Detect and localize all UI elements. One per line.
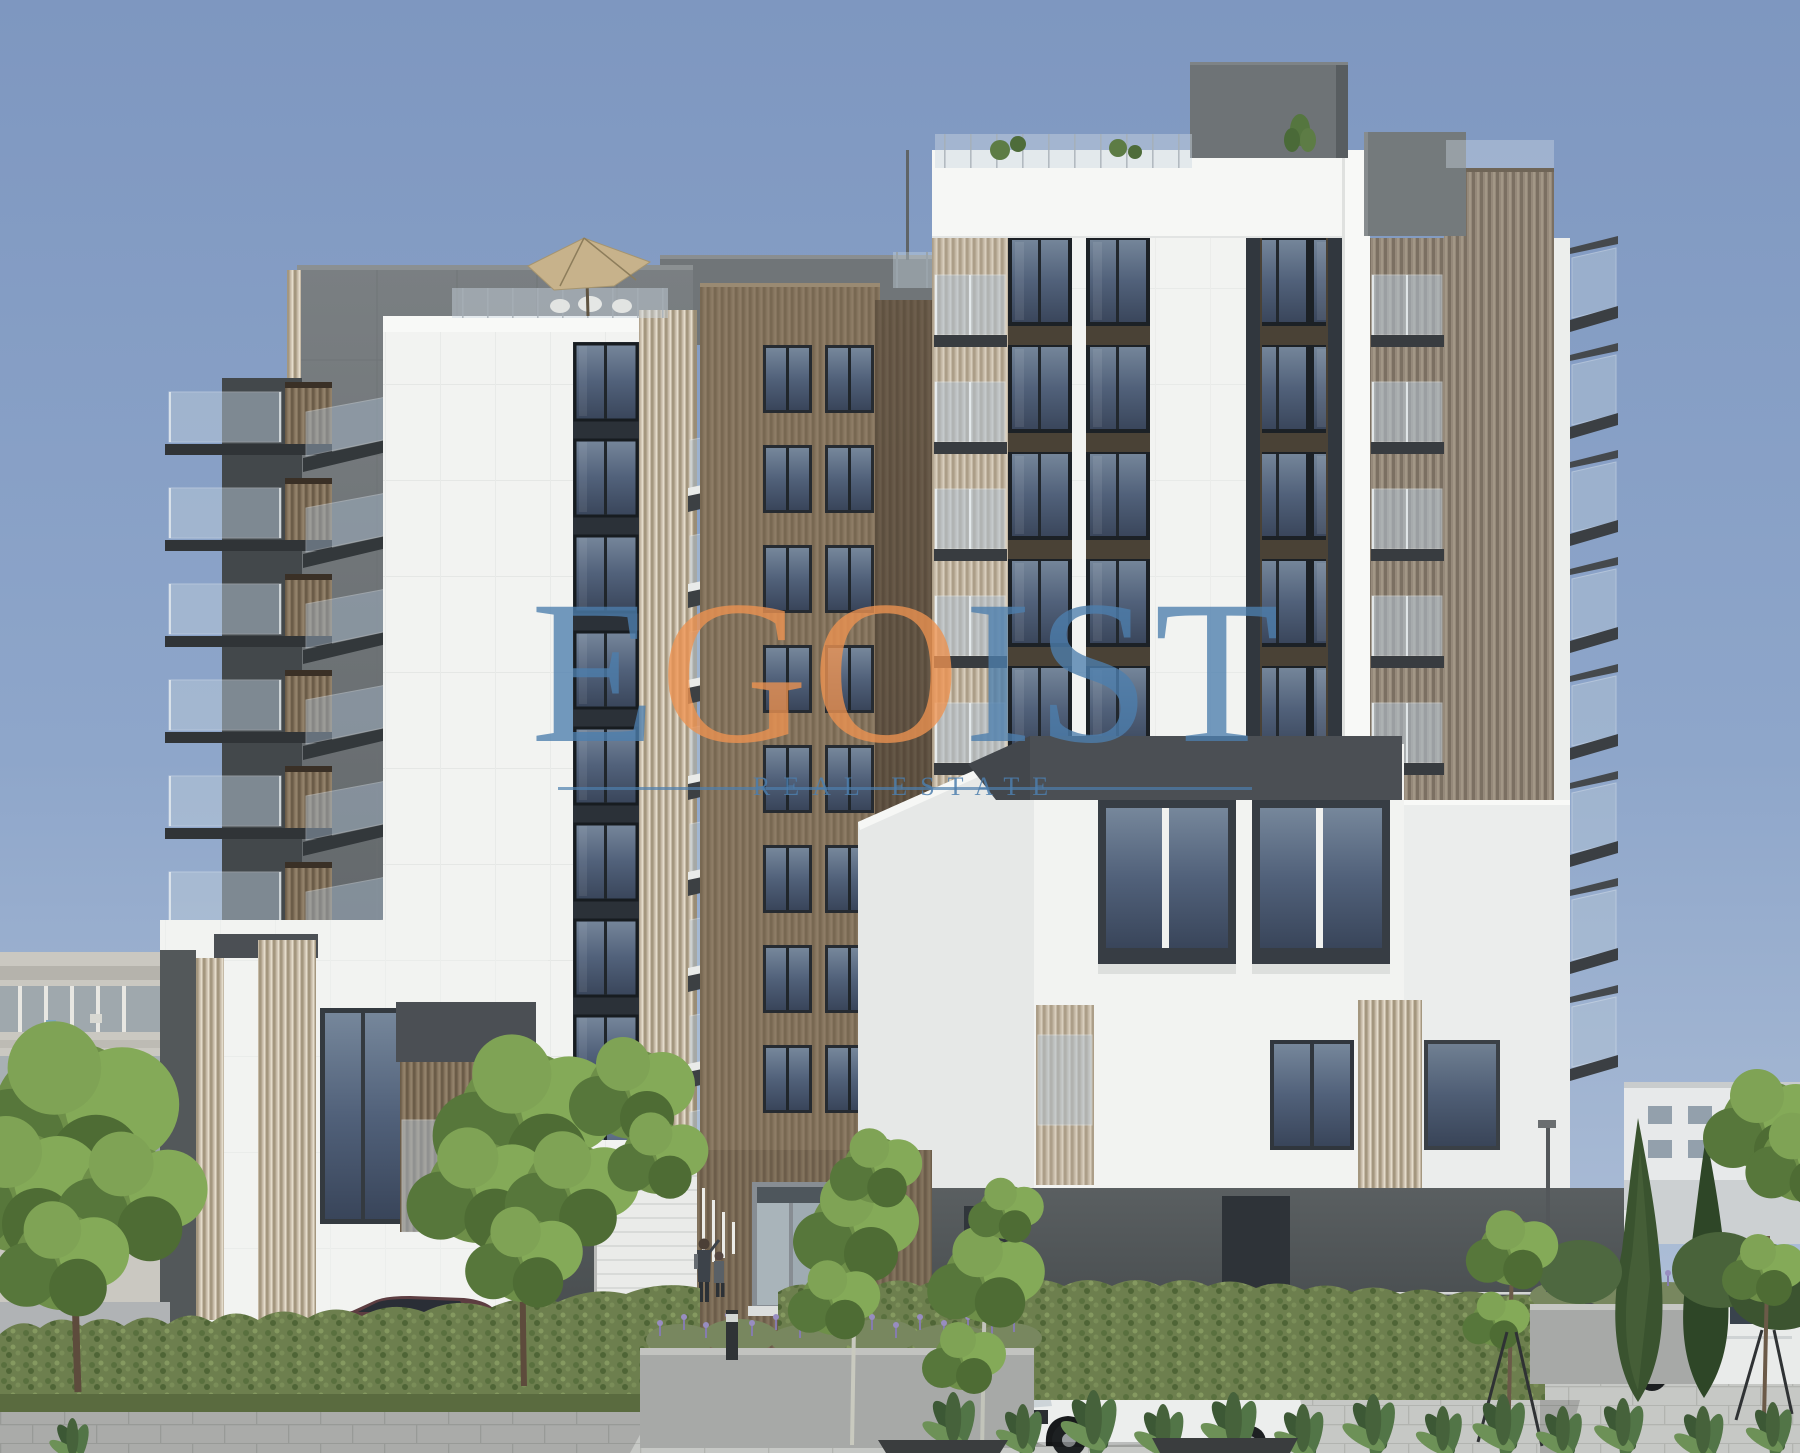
right-cantilever-balconies bbox=[1570, 236, 1618, 1081]
scene bbox=[0, 0, 1800, 1453]
wing-bay-window bbox=[320, 1008, 406, 1224]
bay-window bbox=[1252, 800, 1390, 974]
bollard-light bbox=[726, 1310, 738, 1360]
lower-right-volume bbox=[858, 736, 1570, 1188]
bay-window bbox=[1098, 800, 1236, 974]
architectural-rendering-canvas: EGOIST REAL ESTATE bbox=[0, 0, 1800, 1453]
